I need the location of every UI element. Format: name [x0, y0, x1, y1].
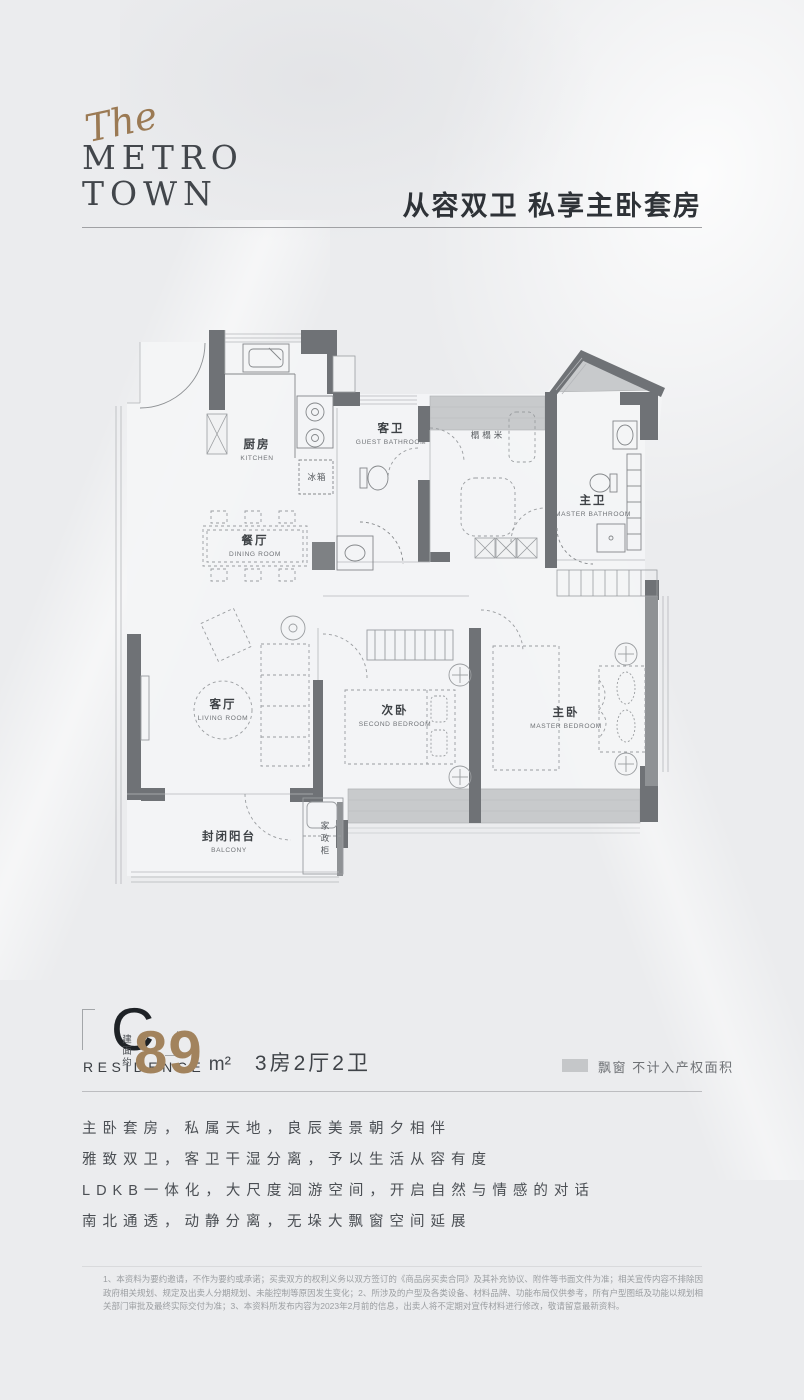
headline: 从容双卫 私享主卧套房 — [402, 184, 702, 223]
label-master-bedroom-en: MASTER BEDROOM — [530, 723, 602, 730]
label-balcony-en: BALCONY — [211, 847, 247, 854]
label-living-zh: 客厅 — [209, 697, 237, 711]
selling-points: 主卧套房，私属天地，良辰美景朝夕相伴 雅致双卫，客卫干湿分离，予以生活从容有度 … — [82, 1114, 595, 1238]
brand-line-town: TOWN — [82, 176, 302, 212]
label-living-en: LIVING ROOM — [198, 715, 249, 722]
legend-label: 飘窗 不计入产权面积 — [598, 1057, 734, 1076]
label-master-bedroom-zh: 主卧 — [553, 705, 580, 719]
legend: 飘窗 不计入产权面积 — [562, 1057, 734, 1076]
brand-logo: The METRO TOWN — [82, 102, 302, 222]
poster-page: The METRO TOWN 从容双卫 私享主卧套房 — [0, 0, 804, 1400]
divider-mid — [82, 1091, 702, 1092]
label-second-bedroom-zh: 次卧 — [382, 703, 409, 717]
selling-point: 南北通透，动静分离，无垛大飘窗空间延展 — [82, 1207, 595, 1238]
label-tatami: 榻榻米 — [471, 430, 506, 440]
area-prefix: 建面约 — [118, 1034, 132, 1074]
area-unit: m² — [209, 1054, 231, 1076]
label-guest-bath-en: GUEST BATHROOM — [356, 439, 426, 446]
bay-window-swatch-icon — [562, 1059, 588, 1072]
divider-top — [82, 227, 702, 228]
floorplan-drawing: 厨房 KITCHEN 冰箱 客卫 GUEST BATHROOM 榻榻米 主卫 M… — [111, 328, 731, 906]
label-kitchen-en: KITCHEN — [240, 455, 273, 462]
bracket-top-left-icon — [82, 1009, 95, 1050]
selling-point: 雅致双卫，客卫干湿分离，予以生活从容有度 — [82, 1145, 595, 1176]
selling-point: 主卧套房，私属天地，良辰美景朝夕相伴 — [82, 1114, 595, 1145]
label-guest-bath-zh: 客卫 — [377, 421, 405, 435]
unit-layout: 3房2厅2卫 — [255, 1047, 371, 1077]
label-second-bedroom-en: SECOND BEDROOM — [359, 721, 432, 728]
label-dining-zh: 餐厅 — [241, 533, 269, 547]
label-utility-cabinet: 家政柜 — [320, 821, 330, 859]
label-master-bath-en: MASTER BATHROOM — [555, 511, 631, 518]
label-dining-en: DINING ROOM — [229, 551, 281, 558]
label-balcony-zh: 封闭阳台 — [202, 829, 256, 843]
selling-point: LDKB一体化，大尺度洄游空间，开启自然与情感的对话 — [82, 1176, 595, 1207]
divider-fine — [82, 1266, 702, 1267]
disclaimer-text: 1、本资料为要约邀请，不作为要约或承诺；买卖双方的权利义务以双方签订的《商品房买… — [103, 1273, 703, 1314]
area-value: 89 — [134, 1025, 203, 1080]
washer-block — [312, 542, 335, 570]
area-info: 建面约 89 m² 3房2厅2卫 — [118, 1025, 371, 1080]
label-fridge: 冰箱 — [307, 472, 326, 482]
label-master-bath-zh: 主卫 — [580, 493, 607, 507]
label-kitchen-zh: 厨房 — [244, 437, 271, 451]
